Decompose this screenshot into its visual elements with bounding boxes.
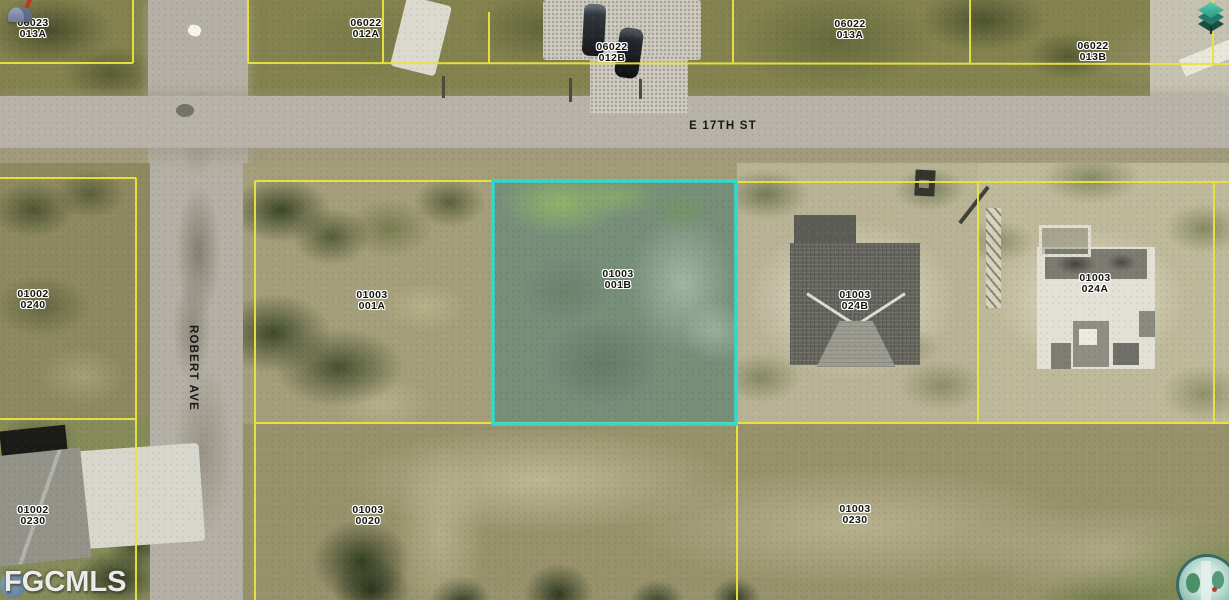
parcel-label: 010020240 (17, 289, 48, 311)
street-label-e-17th-st: E 17TH ST (689, 120, 757, 132)
parcel-label: 010020230 (17, 505, 48, 527)
parcel-label: 010030230 (839, 504, 870, 526)
parcel-label: 01003024B (839, 290, 870, 312)
parcel-label: 01003001A (356, 290, 387, 312)
parcel-label: 06022012A (350, 18, 381, 40)
watermark-fgcmls: FGCMLS (4, 566, 126, 599)
mailbox-icon (6, 0, 36, 26)
aerial-parcel-map: E 17TH ST ROBERT AVE 06023013A 06022012A… (0, 0, 1229, 600)
street-label-robert-ave: ROBERT AVE (187, 325, 199, 411)
parcel-label: 06022013A (834, 19, 865, 41)
parcel-label: 06022012B (596, 42, 627, 64)
parcel-boundary-lines (0, 0, 1229, 600)
parcel-label-highlighted: 01003001B (602, 269, 633, 291)
parcel-label: 01003024A (1079, 273, 1110, 295)
3d-view-icon (1196, 2, 1226, 34)
parcel-label: 06022013B (1077, 41, 1108, 63)
mailbox-body (8, 7, 32, 22)
parcel-label: 010030020 (352, 505, 383, 527)
highlighted-parcel-boundary (493, 181, 736, 424)
